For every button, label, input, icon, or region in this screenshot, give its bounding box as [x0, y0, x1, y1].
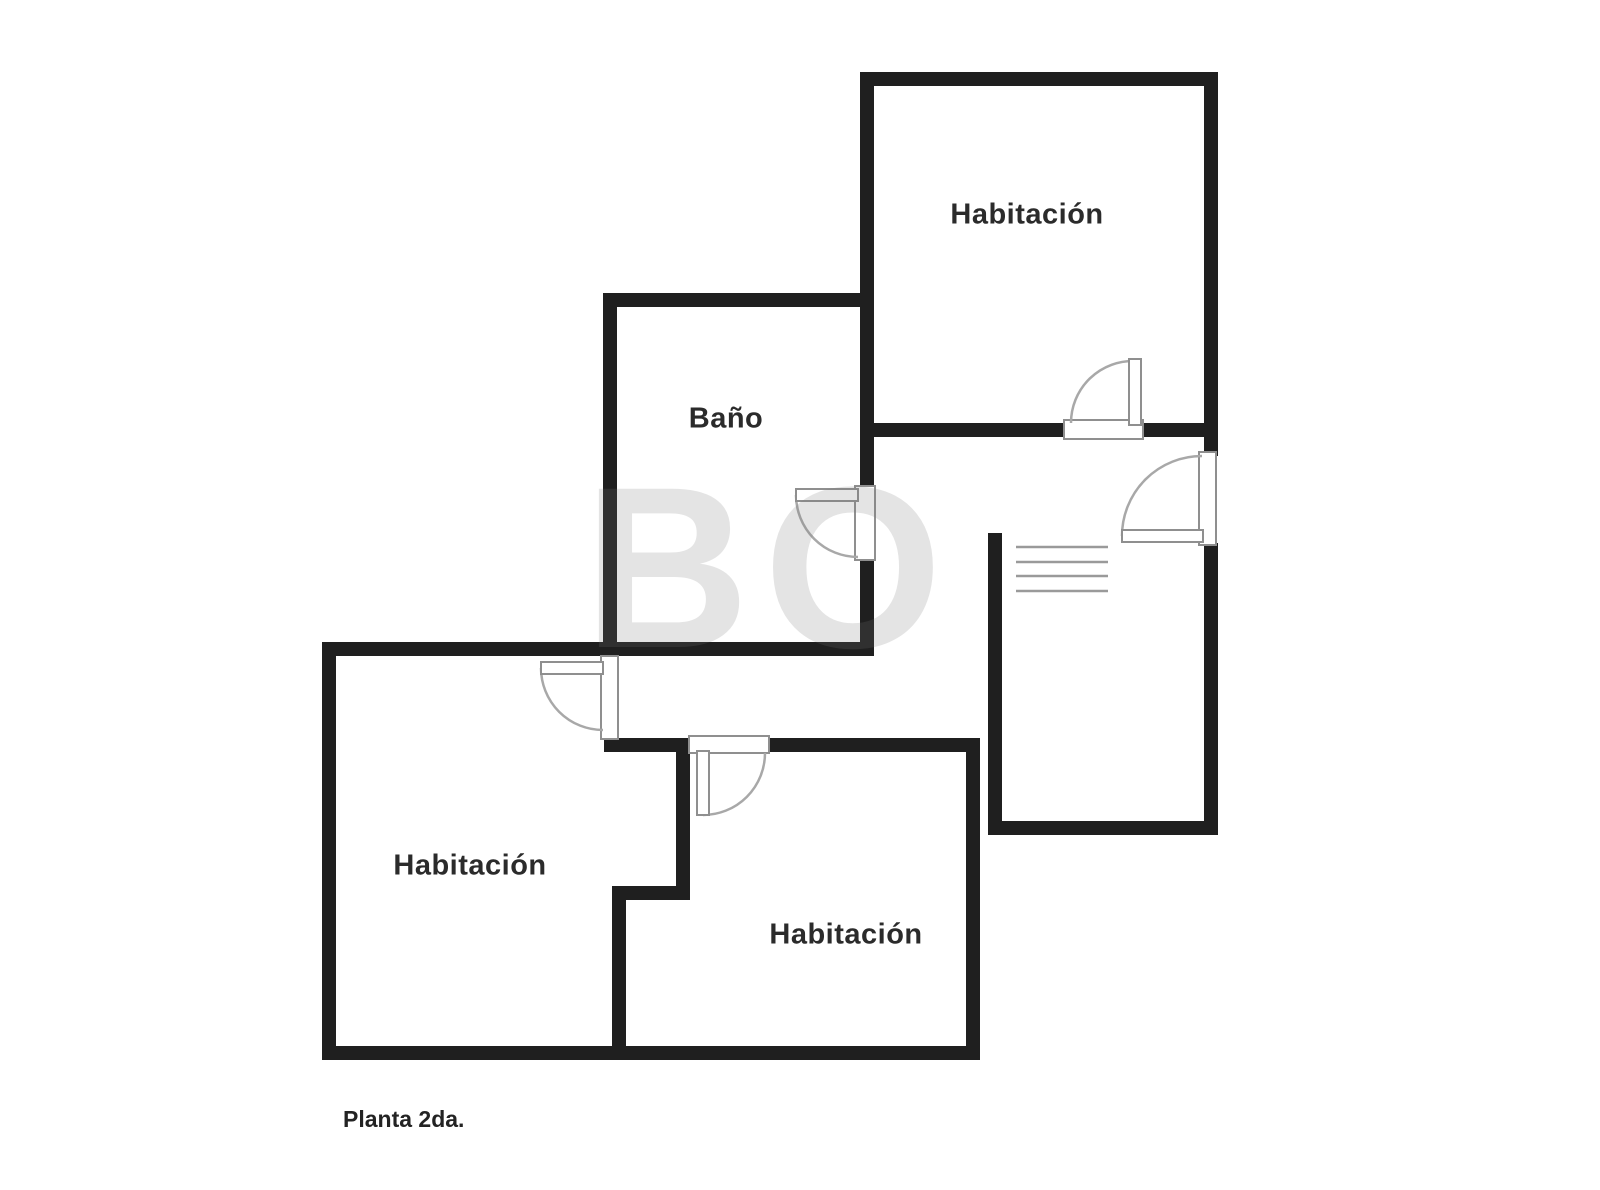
door-leaf-bedroom-left [541, 662, 603, 674]
room-label-bedroom-top: Habitación [950, 199, 1103, 232]
wall-bathroom-right-lower [860, 558, 874, 656]
floor-plan-drawing [0, 0, 1600, 1190]
wall-stairs-left [988, 533, 1002, 835]
floor-title: Planta 2da. [343, 1106, 464, 1133]
wall-bedroom-middle-right [966, 738, 980, 1060]
wall-bathroom-bottom-bedroom-left-top [322, 642, 874, 656]
door-leaf-bathroom [796, 489, 858, 501]
wall-bedroom-middle-left-upper [676, 738, 690, 900]
wall-bathroom-left [603, 293, 617, 656]
wall-bottom [322, 1046, 980, 1060]
wall-top-bedroom-bottom-left-seg [874, 423, 1067, 437]
door-swing-arc-landing-right [1122, 456, 1202, 536]
floor-plan-canvas: BO Habitación Baño Habitación Habitación… [0, 0, 1600, 1190]
wall-bedroom-left-west [322, 642, 336, 1060]
staircase-steps [1016, 547, 1108, 591]
wall-right-upper [1204, 72, 1218, 456]
door-leaf-landing-right [1122, 530, 1203, 542]
door-leaf-bedroom-middle [697, 751, 709, 815]
wall-bedroom-left-east-lower [612, 886, 626, 1060]
wall-right-lower [1204, 543, 1218, 835]
door-swing-arc-bedroom-middle [703, 753, 765, 815]
wall-top-bedroom-top [860, 72, 1218, 86]
wall-stairs-bottom [988, 821, 1218, 835]
door-swing-arc-bedroom-left [541, 668, 603, 730]
wall-bedroom-middle-top-right-seg [767, 738, 980, 752]
wall-top-bedroom-bottom-right-seg [1141, 423, 1204, 437]
wall-top-bedroom-left-upper [860, 72, 874, 488]
door-swing-arc-top-bedroom [1071, 361, 1135, 423]
wall-bathroom-top [603, 293, 860, 307]
door-swing-arc-bathroom [796, 495, 858, 557]
room-label-bathroom: Baño [689, 403, 764, 436]
room-label-bedroom-left: Habitación [393, 850, 546, 883]
door-leaf-top-bedroom [1129, 359, 1141, 425]
room-label-bedroom-middle: Habitación [769, 919, 922, 952]
